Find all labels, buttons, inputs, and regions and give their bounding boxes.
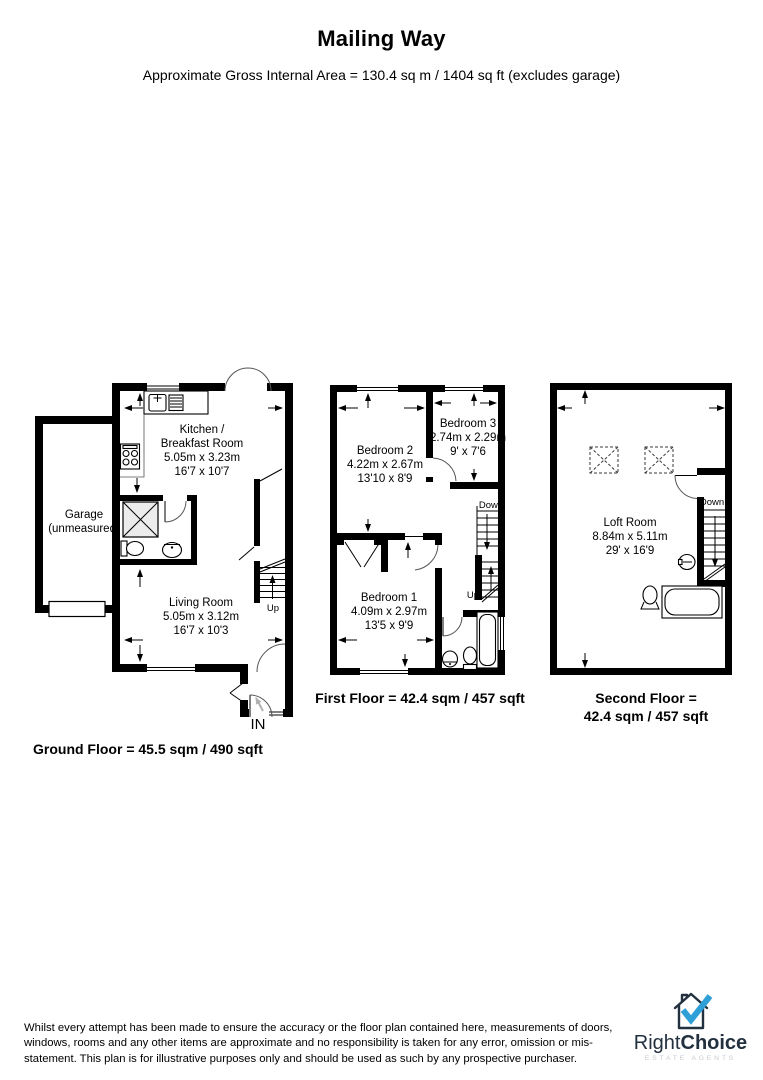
house-check-icon [665,988,717,1032]
bedroom1-dim-imperial: 13'5 x 9'9 [351,619,427,633]
bedroom2-name: Bedroom 2 [347,444,423,458]
disclaimer-text: Whilst every attempt has been made to en… [24,1021,616,1067]
loft-dim-imperial: 29' x 16'9 [592,544,667,558]
loft-name: Loft Room [592,516,667,530]
floorplan-first: Bedroom 2 4.22m x 2.67m 13'10 x 8'9 Bedr… [320,370,520,680]
floorplan-page: Mailing Way Approximate Gross Internal A… [0,0,763,1080]
wc-toilet-icon [121,541,144,556]
bedroom3-name: Bedroom 3 [430,417,506,431]
floorplan-ground: Kitchen / Breakfast Room 5.05m x 3.23m 1… [25,350,325,750]
brand-second: Choice [681,1032,748,1054]
bedroom1-dim-metric: 4.09m x 2.97m [351,605,427,619]
living-dim-metric: 5.05m x 3.12m [163,610,239,624]
bedroom3-dim-imperial: 9' x 7'6 [430,445,506,459]
floorplan-second: Loft Room 8.84m x 5.11m 29' x 16'9 Down [545,370,745,680]
second-floor-caption: Second Floor = 42.4 sqm / 457 sqft [584,689,709,725]
garage-note: (unmeasured) [48,522,120,536]
stove-icon [121,444,140,469]
ground-window-bottom [147,664,195,672]
loft-toilet-icon [641,586,659,609]
bedroom3-dim-metric: 2.74m x 2.29m [430,431,506,445]
living-name: Living Room [163,596,239,610]
bedroom2-dim-imperial: 13'10 x 8'9 [347,472,423,486]
agency-logo: RightChoice ESTATE AGENTS [618,988,763,1062]
ground-french-doors [221,368,271,391]
skylight-icon [590,447,673,473]
front-door [249,695,272,717]
kitchen-dim-imperial: 16'7 x 10'7 [161,465,243,479]
loft-bath-icon [662,586,722,618]
garage-name: Garage [48,508,120,522]
brand-first: Right [634,1032,681,1054]
ground-window-top [147,383,179,391]
loft-room-label: Loft Room 8.84m x 5.11m 29' x 16'9 [592,516,667,558]
brand-wordmark: RightChoice [618,1032,763,1054]
page-title: Mailing Way [0,26,763,52]
garage-door [49,602,105,617]
kitchen-dim-metric: 5.05m x 3.23m [161,451,243,465]
ground-up-label: Up [267,603,279,614]
kitchen-name-2: Breakfast Room [161,437,243,451]
bedroom1-name: Bedroom 1 [351,591,427,605]
first-floor-caption: First Floor = 42.4 sqm / 457 sqft [315,689,525,707]
bath-icon [477,612,498,668]
wc-door [163,495,187,522]
garage-label: Garage (unmeasured) [48,508,120,536]
ground-floor-drawing [25,350,325,750]
second-floor-caption-line2: 42.4 sqm / 457 sqft [584,707,709,725]
living-room-label: Living Room 5.05m x 3.12m 16'7 x 10'3 [163,596,239,638]
ground-stairs [260,559,285,599]
page-subtitle: Approximate Gross Internal Area = 130.4 … [0,67,763,83]
basin-icon [443,651,458,667]
living-dim-imperial: 16'7 x 10'3 [163,624,239,638]
bedroom1-label: Bedroom 1 4.09m x 2.97m 13'5 x 9'9 [351,591,427,633]
brand-tagline: ESTATE AGENTS [618,1055,763,1062]
bedroom3-label: Bedroom 3 2.74m x 2.29m 9' x 7'6 [430,417,506,459]
second-down-label: Down [700,497,724,508]
bedroom2-dim-metric: 4.22m x 2.67m [347,458,423,472]
second-floor-caption-line1: Second Floor = [584,689,709,707]
wc-basin-icon [163,543,182,558]
bedroom2-label: Bedroom 2 4.22m x 2.67m 13'10 x 8'9 [347,444,423,486]
entrance-in-label: IN [251,716,266,733]
ground-floor-caption: Ground Floor = 45.5 sqm / 490 sqft [33,741,263,757]
loft-dim-metric: 8.84m x 5.11m [592,530,667,544]
first-down-label: Down [479,500,503,511]
toilet-icon [464,647,477,670]
kitchen-name-1: Kitchen / [161,423,243,437]
first-up-label: Up [467,590,479,601]
loft-basin-icon [679,555,696,570]
shower-tray-icon [123,502,158,537]
kitchen-label: Kitchen / Breakfast Room 5.05m x 3.23m 1… [161,423,243,479]
